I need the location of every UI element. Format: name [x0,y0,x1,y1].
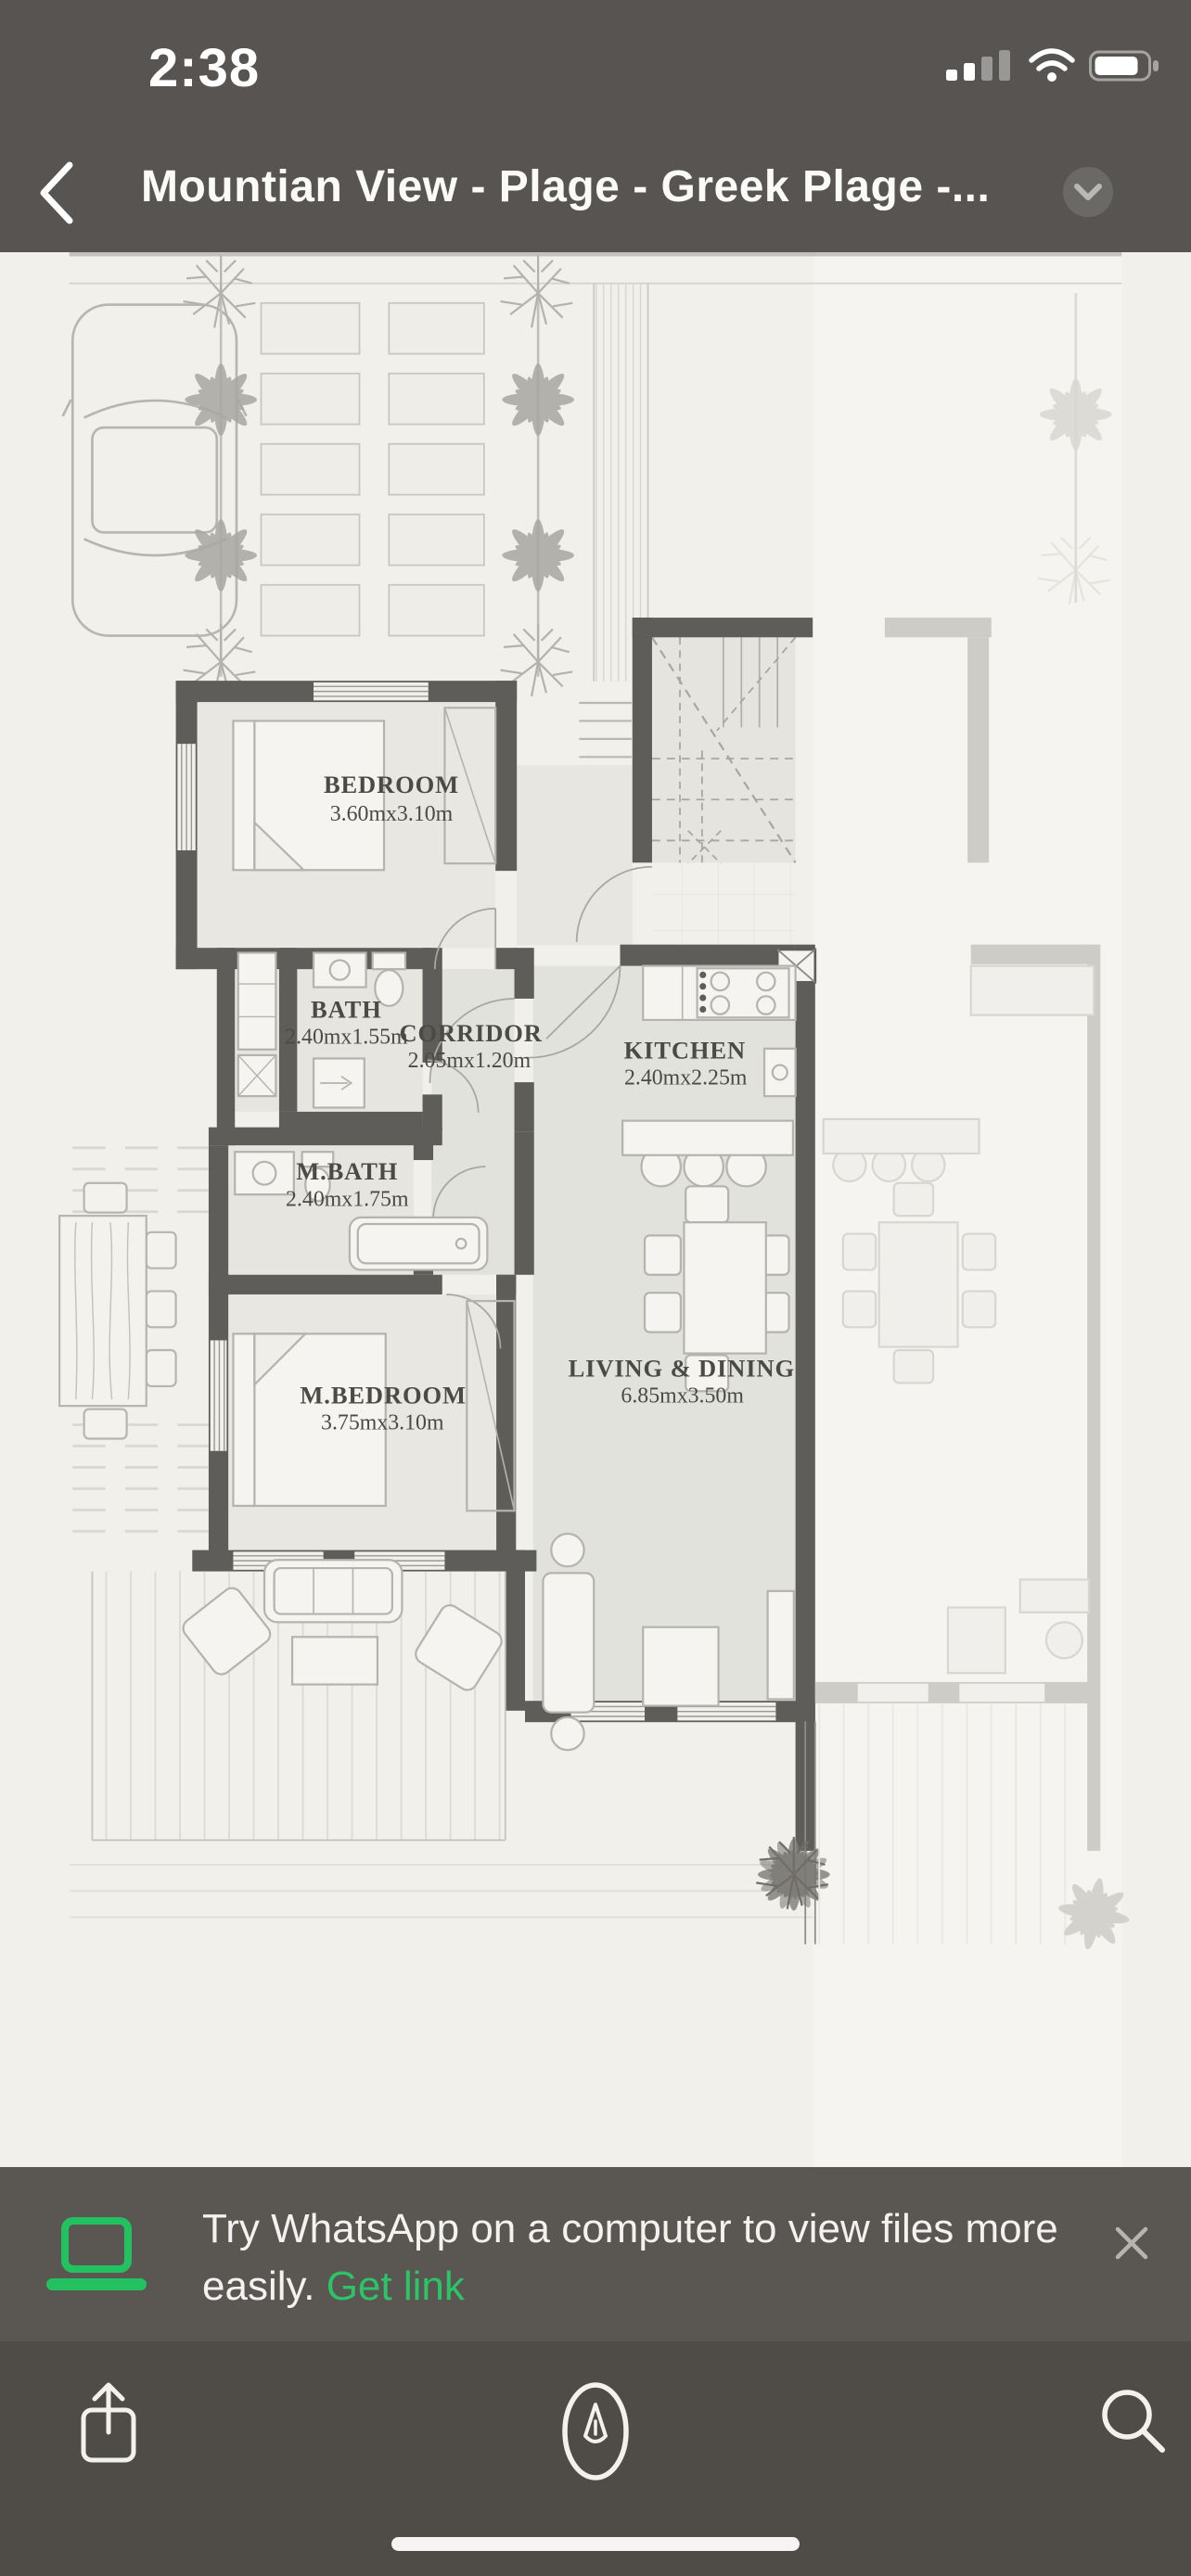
markup-button[interactable] [557,2378,634,2484]
wifi-icon [1028,48,1076,83]
laptop-icon [39,2217,154,2295]
home-indicator[interactable] [391,2537,800,2551]
document-title: Mountian View - Plage - Greek Plage -... [141,161,1031,212]
back-button[interactable] [28,158,83,228]
status-time: 2:38 [148,37,260,99]
room-label-kitchen: KITCHEN [624,1036,746,1064]
floor-plan: BEDROOM 3.60mx3.10m BATH 2.40mx1.55m COR… [0,252,1191,2167]
floor-plan-viewer[interactable]: BEDROOM 3.60mx3.10m BATH 2.40mx1.55m COR… [0,252,1191,2167]
collapse-button[interactable] [1063,167,1113,217]
status-icons [946,48,1163,83]
room-dims-bath: 2.40mx1.55m [285,1026,408,1050]
room-dims-kitchen: 2.40mx2.25m [624,1066,748,1090]
room-dims-corridor: 2.05mx1.20m [408,1049,531,1073]
search-button[interactable] [1096,2384,1169,2456]
cellular-signal-icon [946,49,1015,83]
room-dims-mbath: 2.40mx1.75m [286,1188,409,1212]
room-label-bedroom: BEDROOM [324,771,459,798]
get-link-button[interactable]: Get link [327,2264,465,2309]
room-label-mbedroom: M.BEDROOM [300,1381,466,1409]
banner-message: Try WhatsApp on a computer to view files… [202,2200,1065,2315]
close-icon[interactable] [1113,2225,1150,2262]
outdoor-sofa [264,1560,402,1622]
whatsapp-document-viewer: 2:38 Mountian View - [0,0,1191,2576]
markup-icon [565,2385,626,2478]
share-icon [83,2385,134,2460]
room-dims-living: 6.85mx3.50m [621,1384,744,1409]
room-dims-mbedroom: 3.75mx3.10m [321,1411,444,1435]
room-label-corridor: CORRIDOR [400,1019,543,1047]
room-label-mbath: M.BATH [296,1157,398,1185]
room-dims-bedroom: 3.60mx3.10m [330,802,454,826]
battery-icon [1089,49,1163,83]
share-button[interactable] [76,2378,141,2468]
chevron-down-icon [1065,169,1111,215]
chevron-left-icon [34,159,77,226]
room-label-bath: BATH [311,995,382,1023]
search-icon [1105,2392,1162,2450]
header: 2:38 Mountian View - [0,0,1191,252]
outdoor-table [292,1637,378,1684]
room-label-living: LIVING & DINING [569,1354,795,1382]
whatsapp-desktop-banner: Try WhatsApp on a computer to view files… [0,2167,1191,2341]
